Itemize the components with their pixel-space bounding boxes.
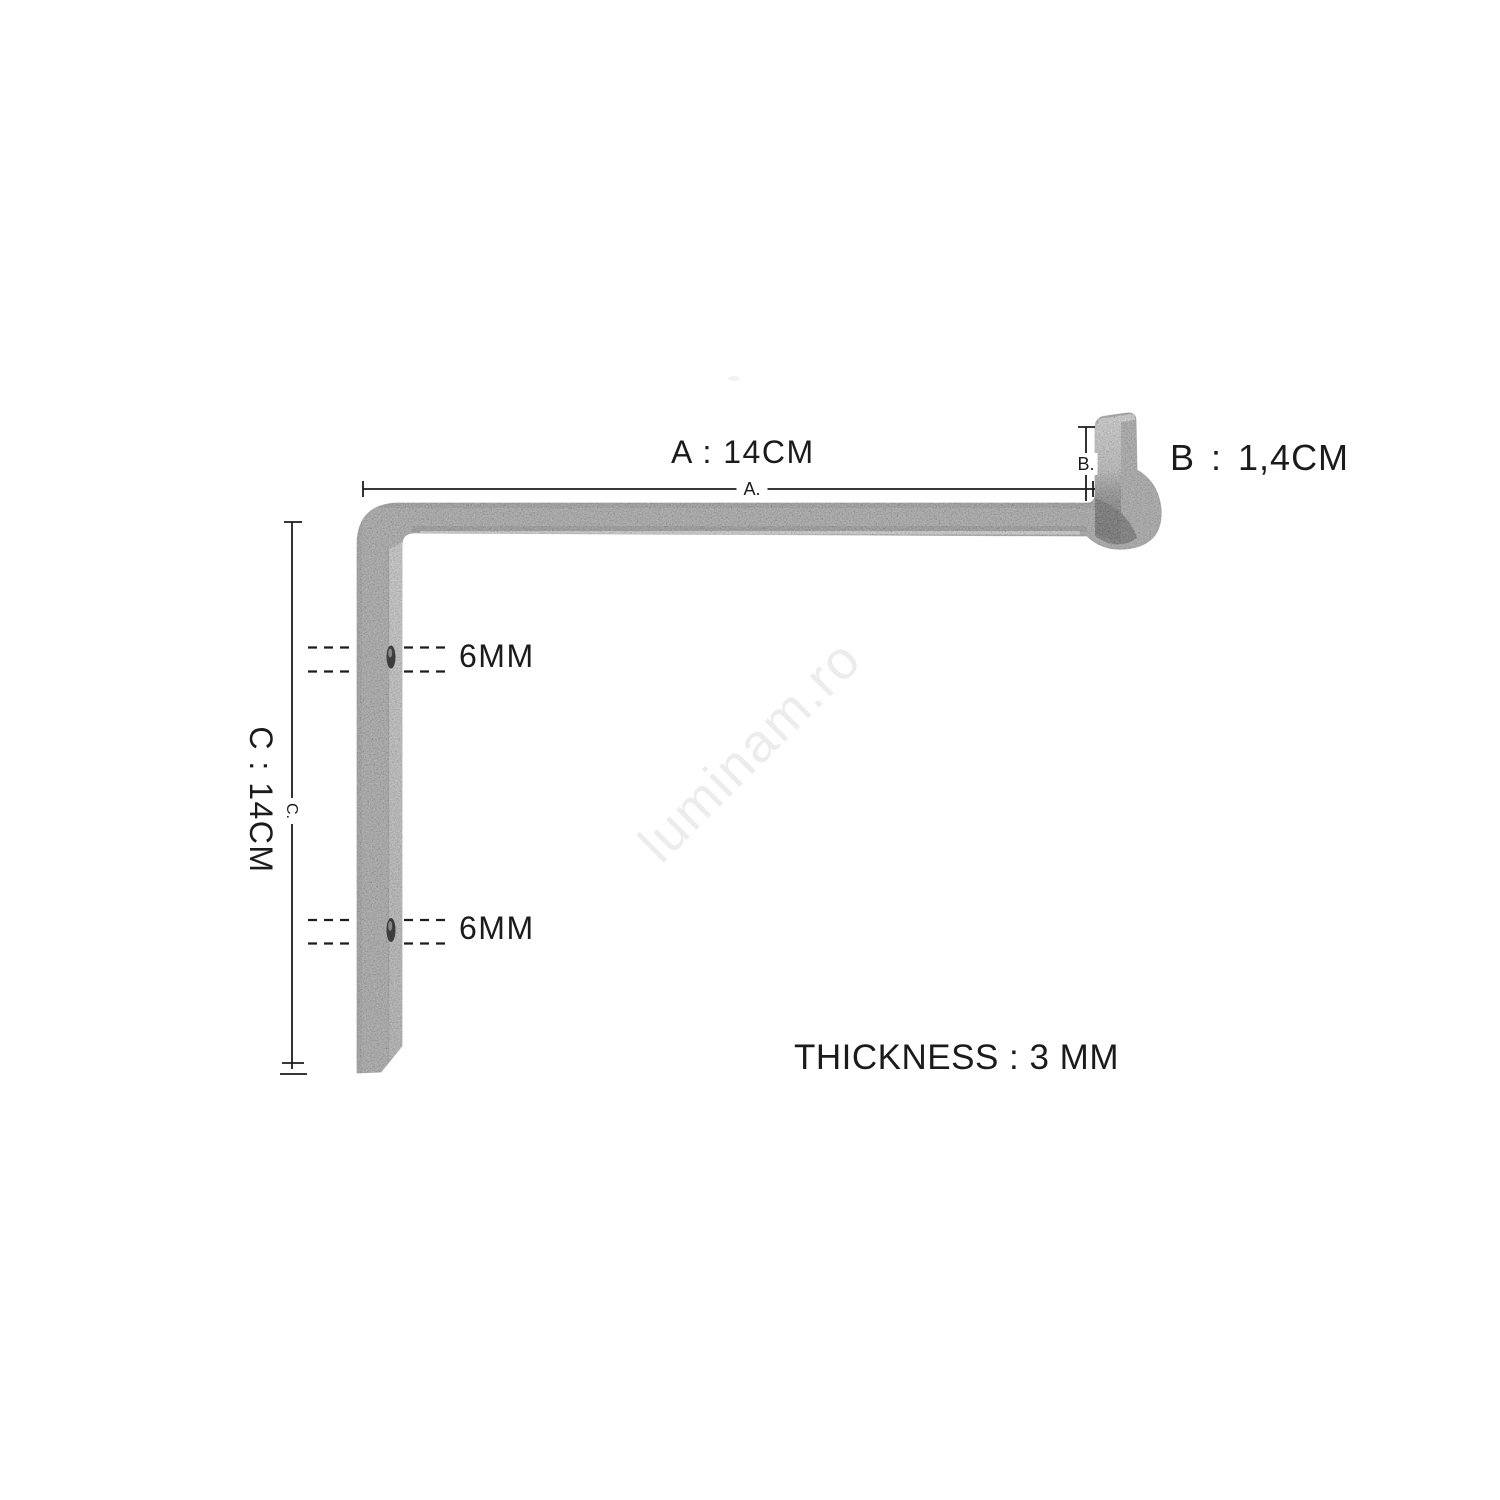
dim-b-label: B : 1,4CM: [1170, 440, 1349, 476]
dim-c-label: C : 14CM: [245, 726, 277, 873]
hole-bottom-label: 6MM: [459, 912, 535, 944]
dim-a-label: A : 14CM: [671, 436, 815, 468]
photo-smudge: [728, 376, 740, 381]
dim-c-line-label: C.: [281, 798, 301, 824]
dim-b-line-label: B.: [1074, 453, 1097, 475]
diagram-canvas: A : 14CM A. B : 1,4CM B. C : 14CM C. 6MM…: [0, 0, 1500, 1500]
thickness-label: THICKNESS : 3 MM: [794, 1040, 1119, 1075]
bracket-hole-top: [387, 646, 396, 669]
dim-a-line-label: A.: [736, 478, 767, 500]
dimension-line-a: [363, 481, 1095, 497]
bracket-hole-bottom: [387, 918, 396, 942]
hole-top-label: 6MM: [459, 640, 535, 672]
